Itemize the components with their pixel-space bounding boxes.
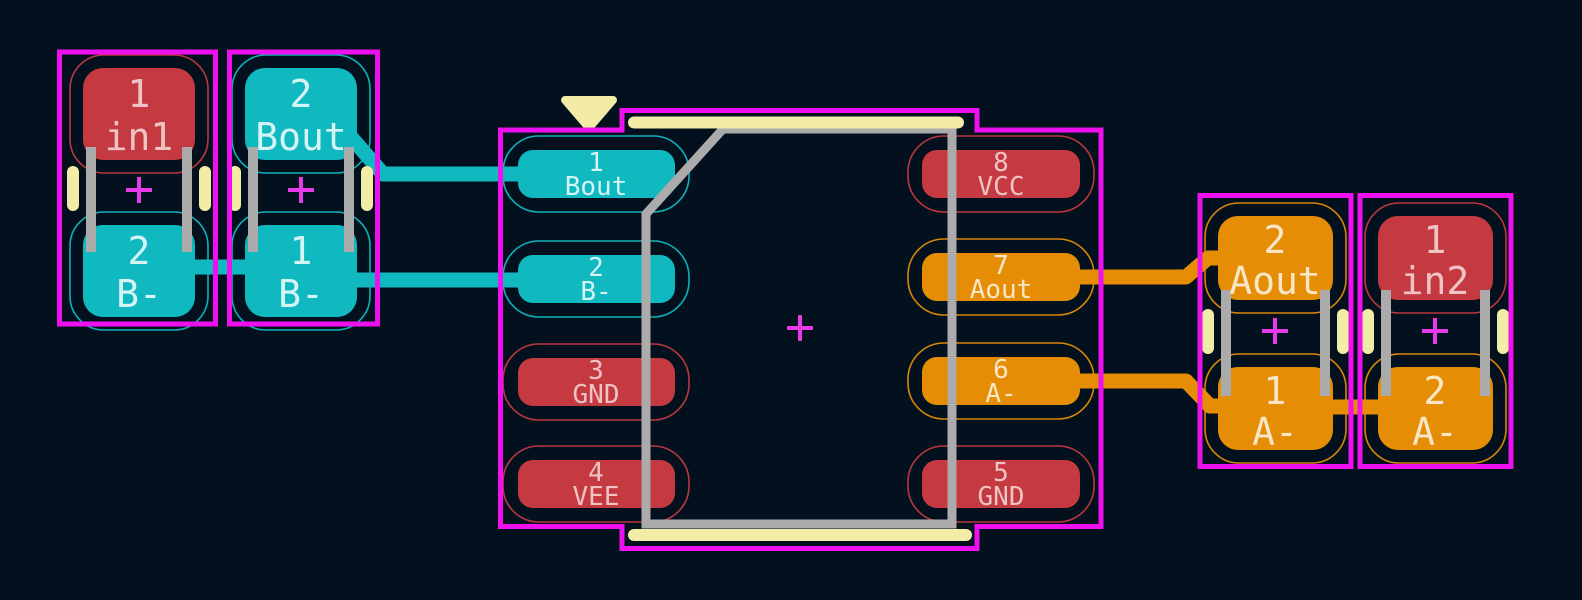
fab-body-edge <box>1381 290 1391 396</box>
pad-net-label: A- <box>985 379 1016 409</box>
anchor-cross <box>1422 318 1448 344</box>
pad-net-label: Aout <box>970 275 1033 305</box>
pad-number: 2 <box>1264 218 1287 262</box>
pad-number: 1 <box>128 72 151 116</box>
fab-body-edge <box>1221 290 1231 396</box>
pad-net-label: A- <box>1252 410 1298 454</box>
pad-net-label: GND <box>978 482 1025 512</box>
fab-body-edge <box>1320 290 1330 396</box>
pad-net-label: B- <box>580 277 611 307</box>
anchor-cross <box>787 315 813 341</box>
fab-body-edge <box>248 147 258 252</box>
anchor-cross <box>288 177 314 203</box>
pad-net-label: B- <box>116 272 162 316</box>
component-soic8-ic: 1 Bout 2 B- 3 GND 4 VEE 8 VCC 7 Aout 6 A… <box>501 100 1102 549</box>
fab-body-edge <box>182 147 192 252</box>
pad-net-label: Aout <box>1229 259 1321 303</box>
fab-body-edge <box>344 147 354 252</box>
silkscreen-bar <box>361 166 373 211</box>
pad-number: 2 <box>1424 369 1447 413</box>
silkscreen-bar <box>199 166 211 211</box>
pad-net-label: Bout <box>255 115 347 159</box>
silkscreen-bar <box>1497 309 1509 354</box>
anchor-cross <box>1262 318 1288 344</box>
pad-net-label: VEE <box>573 482 620 512</box>
pad-number: 1 <box>290 229 313 273</box>
pad-number: 1 <box>1264 369 1287 413</box>
trace-net-Aout[interactable] <box>1072 258 1232 277</box>
silkscreen-bar <box>1202 309 1214 354</box>
silkscreen-bar <box>67 166 79 211</box>
pad-net-label: A- <box>1412 410 1458 454</box>
pad-net-label: GND <box>573 380 620 410</box>
trace-net-A-[interactable] <box>1072 381 1232 406</box>
pad-number: 2 <box>290 72 313 116</box>
pcb-layout-svg: 1 in1 2 B- 2 Bout 1 B- <box>0 0 1582 600</box>
pad-number: 2 <box>128 229 151 273</box>
pad-net-label: in1 <box>105 115 174 159</box>
component-passive-left-2: 2 Bout 1 B- <box>229 52 378 324</box>
silkscreen-bar <box>1362 309 1374 354</box>
pad-net-label: Bout <box>565 172 628 202</box>
pin1-marker-triangle <box>565 100 613 128</box>
pcb-editor-canvas: 1 in1 2 B- 2 Bout 1 B- <box>0 0 1582 600</box>
anchor-cross <box>126 177 152 203</box>
fab-body-edge <box>86 147 96 252</box>
component-passive-right-2: 1 in2 2 A- <box>1360 196 1511 467</box>
pad-net-label: B- <box>278 272 324 316</box>
silkscreen-bar <box>1337 309 1349 354</box>
component-passive-right-1: 2 Aout 1 A- <box>1200 196 1351 467</box>
component-passive-left-1: 1 in1 2 B- <box>60 52 216 324</box>
pad-number: 1 <box>1424 218 1447 262</box>
pad-net-label: in2 <box>1401 259 1470 303</box>
pad-net-label: VCC <box>978 172 1025 202</box>
fab-body-edge <box>1480 290 1490 396</box>
